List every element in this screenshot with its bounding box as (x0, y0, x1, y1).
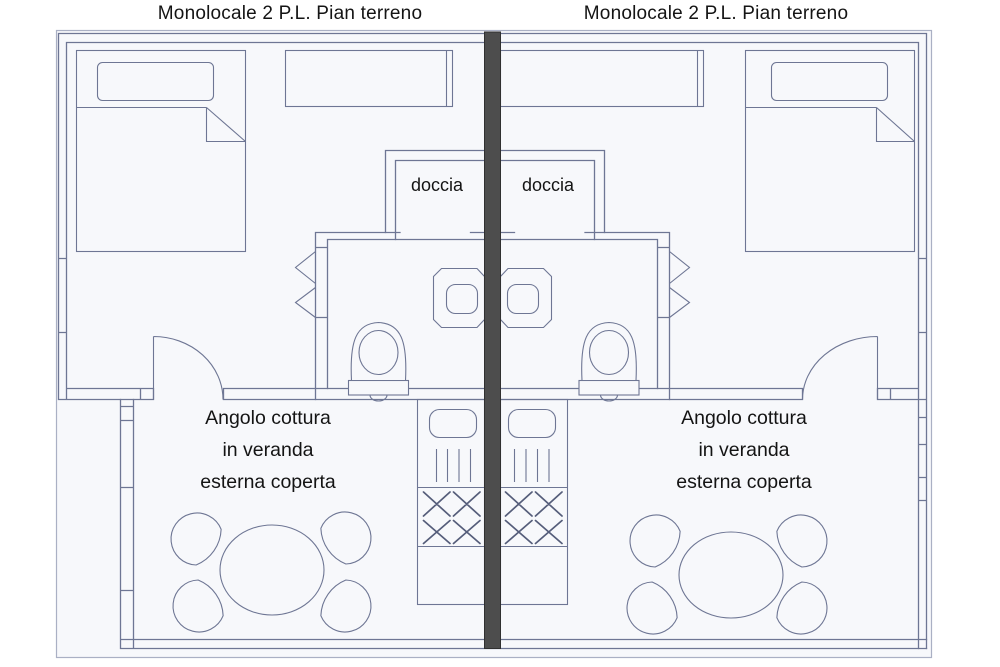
shower-label: doccia (522, 175, 575, 195)
toilet (579, 323, 639, 402)
veranda-label-line2: in veranda (698, 439, 789, 461)
veranda-label-line3: esterna coperta (676, 471, 812, 493)
veranda-label-line1: Angolo cottura (205, 407, 331, 429)
veranda-label-line3: esterna coperta (200, 471, 336, 493)
washbasin (434, 269, 485, 328)
toilet (349, 323, 409, 402)
veranda-label-line2: in veranda (222, 439, 313, 461)
veranda-label-line1: Angolo cottura (681, 407, 807, 429)
divider-wall (485, 32, 501, 649)
floor-plan-drawing: doccia (0, 0, 1000, 667)
dining-table (220, 525, 324, 615)
floor-plan-page: Monolocale 2 P.L. Pian terreno Monolocal… (0, 0, 1000, 667)
dining-table (679, 532, 783, 618)
washbasin (501, 269, 552, 328)
shower-label: doccia (411, 175, 464, 195)
